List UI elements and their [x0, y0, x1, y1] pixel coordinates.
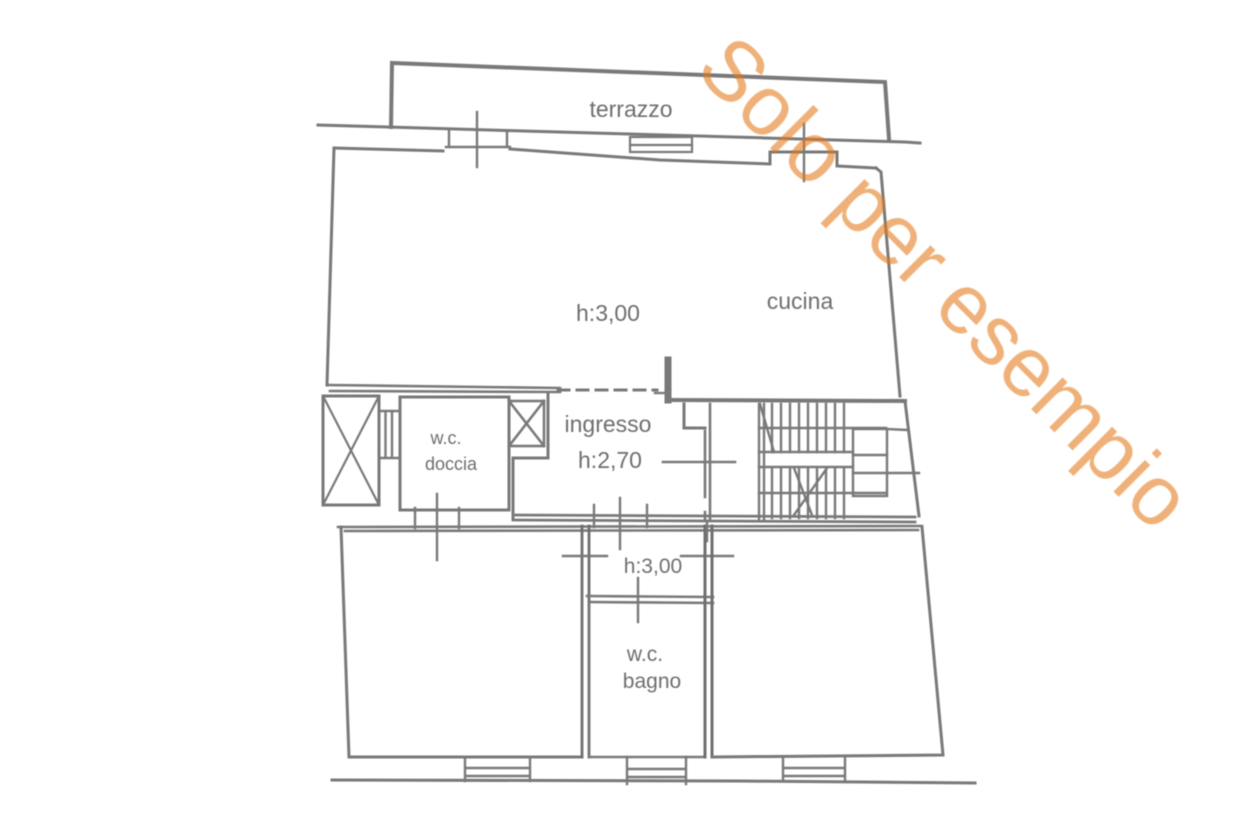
svg-text:h:3,00: h:3,00	[576, 300, 640, 326]
svg-text:h:3,00: h:3,00	[624, 555, 682, 578]
svg-text:h:2,70: h:2,70	[578, 447, 642, 473]
svg-text:w.c.: w.c.	[429, 428, 461, 448]
svg-text:doccia: doccia	[425, 454, 478, 474]
svg-text:terrazzo: terrazzo	[589, 96, 672, 122]
svg-text:cucina: cucina	[767, 288, 834, 314]
svg-text:w.c.: w.c.	[626, 643, 663, 666]
svg-text:ingresso: ingresso	[565, 411, 652, 437]
svg-text:bagno: bagno	[623, 670, 681, 693]
